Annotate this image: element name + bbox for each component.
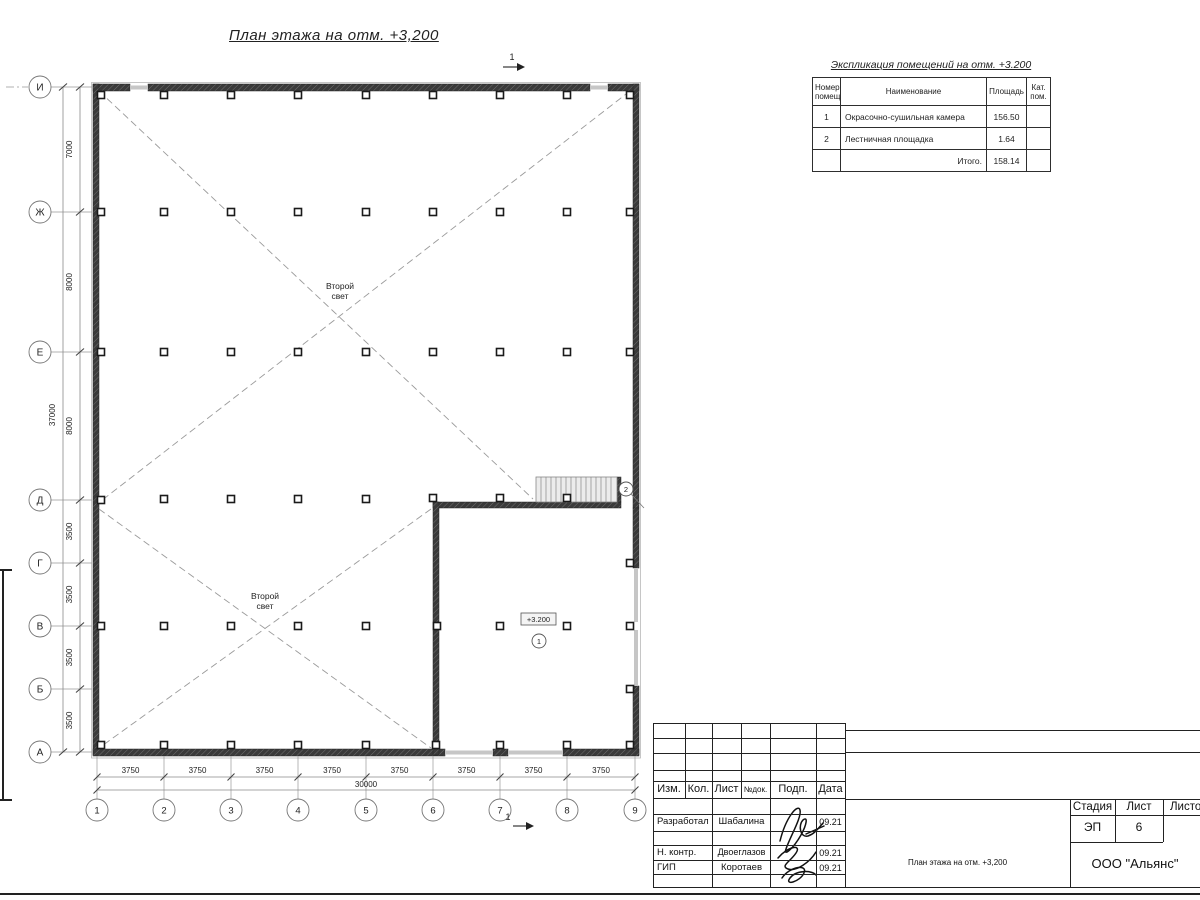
dimension-label: 3750 [122,766,140,775]
dimension-label: 3750 [323,766,341,775]
wall-opening [590,86,608,90]
axis-label: 1 [94,806,99,817]
column-marker [363,92,370,99]
signature-icon [770,842,830,888]
dimension-label: 3750 [391,766,409,775]
axis-label: 2 [161,806,166,817]
axis-label: 6 [430,806,435,817]
second-light-label: свет [256,601,273,611]
column-marker [497,92,504,99]
axis-label: 8 [564,806,569,817]
column-marker [98,92,105,99]
second-light-label: свет [331,291,348,301]
column-marker [98,623,105,630]
page-title: План этажа на отм. +3,200 [229,27,439,44]
dimension-label: 37000 [48,403,57,426]
dimension-label: 3750 [592,766,610,775]
dimension-label: 3500 [65,648,74,666]
titleblock-line [653,781,845,782]
column-marker [627,742,634,749]
wall-opening [634,568,638,622]
column-marker [564,349,571,356]
column-marker [295,623,302,630]
diagonal-dashed [101,91,630,501]
axis-label: 7 [497,806,502,817]
tb-role-developer: Разработал [657,817,709,827]
titleblock-line [845,799,1200,800]
titleblock-line [741,723,742,798]
section-arrow-icon [526,822,534,830]
column-marker [564,495,571,502]
schedule-table: Номер помещ. Наименование Площадь Кат. п… [812,77,1051,172]
tb-col-data: Дата [816,784,845,795]
column-marker [161,496,168,503]
dimension-label: 3750 [189,766,207,775]
tb-company: ООО "Альянс" [1070,857,1200,870]
tb-role-ncontrol: Н. контр. [657,848,696,858]
column-marker [433,742,440,749]
schedule-header-area: Площадь [987,78,1027,106]
tb-stage-label: Стадия [1070,802,1115,814]
axis-label: Д [37,496,44,507]
column-marker [98,497,105,504]
column-marker [228,92,235,99]
schedule-header-num: Номер помещ. [813,78,841,106]
titleblock-line [712,723,713,888]
cell-num: 2 [813,128,841,150]
column-marker [497,623,504,630]
titleblock-line [845,730,1200,731]
cell-blank [1027,150,1051,172]
column-marker [295,209,302,216]
tb-col-izm: Изм. [653,784,685,795]
titleblock-line [1163,799,1164,842]
column-marker [627,686,634,693]
column-marker [228,623,235,630]
titleblock-line [1070,799,1071,888]
total-value: 158.14 [987,150,1027,172]
titleblock-line [653,874,845,875]
titleblock-line [653,845,845,846]
titleblock-line [653,770,845,771]
column-marker [161,349,168,356]
room-schedule: Экспликация помещений на отм. +3.200 Ном… [812,59,1050,172]
column-marker [497,742,504,749]
column-marker [627,560,634,567]
room-number-label: 2 [624,485,628,494]
building-outline [92,83,641,759]
room-number-label: 1 [537,637,541,646]
wall-opening [508,751,563,755]
axis-label: Е [37,348,44,359]
dimension-label: 3750 [256,766,274,775]
wall-segment [493,749,508,756]
column-marker [228,349,235,356]
column-marker [627,623,634,630]
total-label: Итого. [841,150,987,172]
column-marker [228,209,235,216]
drawing-sheet: ИЖЕДГВБА12345678970008000800035003500350… [0,0,1200,900]
column-marker [98,742,105,749]
titleblock-line [653,860,845,861]
column-marker [295,742,302,749]
axis-label: А [37,748,44,759]
tb-col-kol: Кол. [685,784,712,795]
tb-sheet-label: Лист [1115,802,1163,814]
column-marker [564,742,571,749]
titleblock-line [653,753,845,754]
column-marker [430,92,437,99]
column-marker [295,349,302,356]
wall-segment [433,502,621,508]
axis-label: Ж [35,208,45,219]
axis-label: Б [37,685,44,696]
column-marker [564,92,571,99]
cell-name: Лестничная площадка [841,128,987,150]
titleblock-line [653,723,845,724]
tb-stage-value: ЭП [1070,821,1115,833]
titleblock-line [653,738,845,739]
column-marker [161,623,168,630]
column-marker [434,623,441,630]
staircase [536,477,617,502]
titleblock-line [1115,799,1116,842]
dimension-label: 30000 [355,780,378,789]
column-marker [363,496,370,503]
column-marker [98,349,105,356]
axis-label: 4 [295,806,300,817]
second-light-label: Второй [251,591,279,601]
section-mark-label: 1 [505,812,510,822]
axis-label: В [37,622,44,633]
dimension-label: 8000 [65,417,74,435]
tb-sheets-label: Листов [1170,802,1200,814]
column-marker [228,742,235,749]
dimension-label: 3500 [65,522,74,540]
column-marker [295,92,302,99]
column-marker [497,495,504,502]
axis-label: 5 [363,806,368,817]
titleblock-line [816,723,817,888]
dimension-label: 3750 [458,766,476,775]
cell-num: 1 [813,106,841,128]
wall-opening [445,751,493,755]
tb-name-ncontrol: Двоеглазов [713,848,770,857]
column-marker [627,92,634,99]
tb-col-ndok: №док. [741,786,770,794]
column-marker [430,495,437,502]
dimension-label: 7000 [65,140,74,158]
titleblock-line [770,723,771,888]
column-marker [497,349,504,356]
frame-edge [2,569,4,801]
column-marker [363,742,370,749]
cell-cat [1027,106,1051,128]
titleblock-line [845,752,1200,753]
diagonal-dashed [99,91,533,499]
titleblock-line [1070,842,1163,843]
column-marker [161,209,168,216]
wall-segment [148,84,590,91]
second-light-label: Второй [326,281,354,291]
dimension-label: 3500 [65,585,74,603]
tb-doc-title: План этажа на отм. +3,200 [845,859,1070,867]
titleblock-line [685,723,686,798]
column-marker [228,496,235,503]
axis-label: 9 [632,806,637,817]
titleblock-line [1070,815,1200,816]
schedule-title: Экспликация помещений на отм. +3.200 [812,59,1050,71]
schedule-header-row: Номер помещ. Наименование Площадь Кат. п… [813,78,1051,106]
wall-opening [634,630,638,686]
column-marker [295,496,302,503]
table-row: 2 Лестничная площадка 1.64 [813,128,1051,150]
wall-segment [633,84,639,508]
titleblock-line [653,814,845,815]
column-marker [161,92,168,99]
tb-col-list: Лист [712,784,741,795]
column-marker [564,209,571,216]
column-marker [497,209,504,216]
titleblock-line [653,887,1200,888]
column-marker [363,349,370,356]
tb-name-gip: Коротаев [713,863,770,873]
column-marker [363,623,370,630]
column-marker [161,742,168,749]
section-arrow-icon [517,63,525,71]
axis-label: И [36,83,43,94]
axis-label: Г [37,559,43,570]
wall-segment [93,84,99,755]
column-marker [627,209,634,216]
schedule-total-row: Итого. 158.14 [813,150,1051,172]
cell-cat [1027,128,1051,150]
titleblock-line [653,798,845,799]
axis-label: 3 [228,806,233,817]
dimension-label: 8000 [65,273,74,291]
column-marker [430,349,437,356]
cell-area: 156.50 [987,106,1027,128]
column-marker [564,623,571,630]
section-mark-label: 1 [509,52,514,62]
titleblock-line [845,723,846,888]
cell-name: Окрасочно-сушильная камера [841,106,987,128]
column-marker [363,209,370,216]
wall-segment [563,749,639,756]
titleblock-line [653,831,845,832]
column-marker [98,209,105,216]
column-marker [627,349,634,356]
tb-role-gip: ГИП [657,863,676,873]
wall-opening [130,86,148,90]
column-marker [430,209,437,216]
cell-blank [813,150,841,172]
wall-segment [93,749,445,756]
sheet-bottom-edge [0,893,1200,895]
schedule-header-name: Наименование [841,78,987,106]
tb-col-podp: Подп. [770,784,816,795]
tb-name-developer: Шабалина [713,817,770,827]
dimension-label: 3500 [65,711,74,729]
table-row: 1 Окрасочно-сушильная камера 156.50 [813,106,1051,128]
schedule-header-cat: Кат. пом. [1027,78,1051,106]
dimension-label: 3750 [525,766,543,775]
elevation-label: +3.200 [527,615,550,624]
cell-area: 1.64 [987,128,1027,150]
titleblock-line [653,723,654,888]
tb-sheet-value: 6 [1115,821,1163,833]
